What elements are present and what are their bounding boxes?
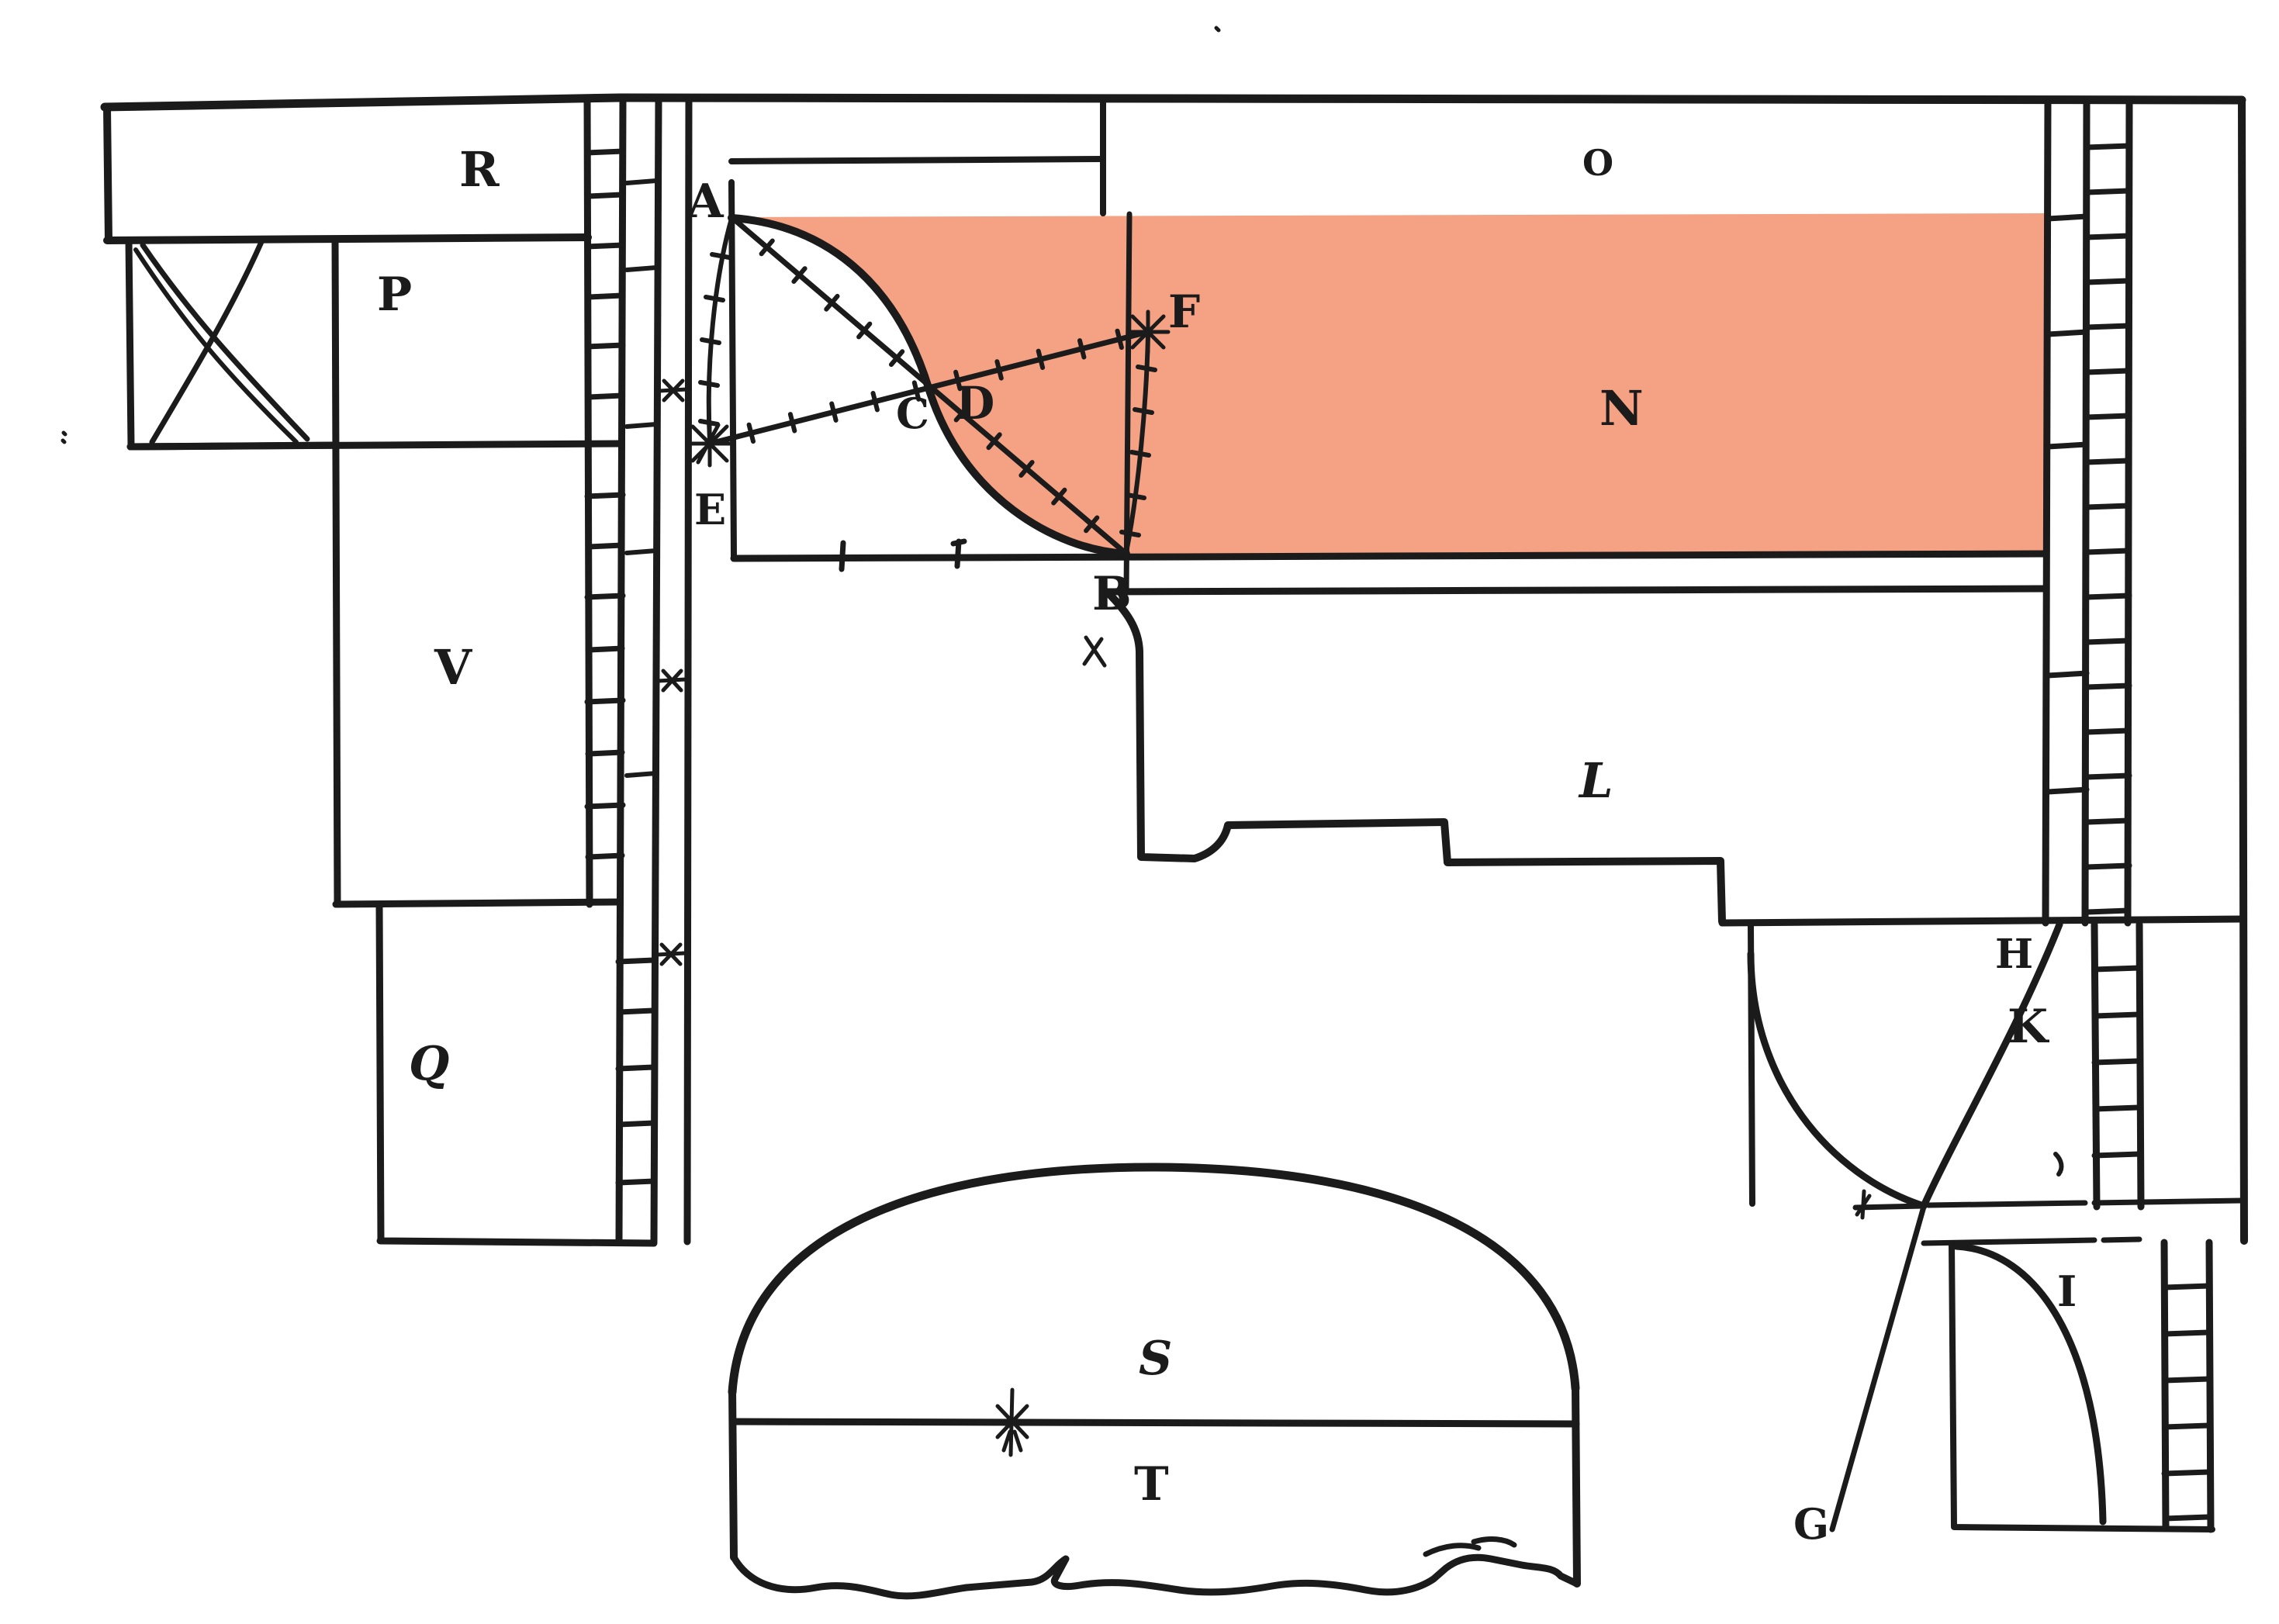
l-region-top-line <box>1105 589 2046 592</box>
square-and-n-bottom-line <box>734 554 2046 558</box>
k-quarter-arc <box>1751 954 1924 1206</box>
dome-left-wall <box>732 1388 734 1557</box>
box-p-bottom-line <box>130 444 621 447</box>
dome-torn-ground-line <box>734 1557 1577 1596</box>
i-top-line <box>1924 1239 2139 1243</box>
left-scale-ticks <box>627 181 656 776</box>
left-scale-rail-1 <box>587 99 590 904</box>
label-t: T <box>1134 1457 1169 1512</box>
label-f: F <box>1168 285 1200 338</box>
ornament-cross-curve-1b <box>136 250 296 442</box>
right-strip-divisions <box>2048 216 2087 792</box>
label-g: G <box>1793 1499 1829 1549</box>
label-n: N <box>1599 380 1644 437</box>
ornament-cross-curve-1 <box>143 245 307 439</box>
paper-speck-top <box>1216 28 1219 30</box>
dome-right-wall <box>1575 1387 1577 1584</box>
right-mid-ladder-rungs <box>2094 968 2139 1156</box>
plus-tick-k-line <box>1857 1191 1869 1218</box>
star-mark-f <box>1128 312 1168 352</box>
dome-springing-line <box>732 1422 1576 1424</box>
arc-a-to-e-ticks <box>700 254 729 424</box>
paper-speck-left <box>63 433 65 442</box>
left-scale-ladder-rungs <box>587 151 623 857</box>
cross-mark-under-b <box>1084 638 1105 665</box>
label-k: K <box>2008 1000 2049 1054</box>
right-strip-rail-1 <box>2046 103 2048 923</box>
ornament-cross-curve-2 <box>152 242 261 442</box>
arc-a-to-e <box>709 219 731 441</box>
cross-mark-ruler-3 <box>657 945 685 964</box>
engraving-page: R P V Q A E C D F B O N L H K I G S T <box>0 0 2279 1624</box>
right-ladder-rungs <box>2087 146 2129 912</box>
label-l: L <box>1578 752 1613 809</box>
right-strip-rail-3 <box>2128 103 2129 923</box>
cross-mark-ruler-2 <box>658 671 686 690</box>
label-i: I <box>2057 1266 2077 1316</box>
left-scale-rail-3 <box>654 99 659 1242</box>
right-border-line <box>2242 100 2244 1241</box>
label-b: B <box>1092 567 1132 621</box>
left-scale-rail-4 <box>687 99 689 1242</box>
i-quarter-arc <box>1956 1246 2103 1522</box>
label-a: A <box>686 174 725 229</box>
burst-mark-arch-center <box>995 1390 1029 1455</box>
top-border-line <box>105 98 2242 107</box>
label-v: V <box>434 639 472 696</box>
label-d: D <box>956 377 994 430</box>
label-q: Q <box>409 1037 449 1091</box>
label-o: O <box>1582 142 1613 184</box>
label-h: H <box>1995 931 2033 978</box>
k-comma-mark <box>2056 1154 2061 1174</box>
label-s: S <box>1139 1332 1172 1386</box>
left-scale-lower-rungs <box>618 960 654 1183</box>
right-strip-rail-2 <box>2085 103 2087 923</box>
box-p-v-left-edge <box>335 240 337 904</box>
g-construction-line <box>1832 1207 1924 1529</box>
label-c: C <box>896 389 929 438</box>
dome-ground-flourish <box>1426 1539 1514 1554</box>
label-e: E <box>694 485 726 534</box>
label-r: R <box>459 141 500 198</box>
square-left-edge <box>731 182 734 557</box>
top-fascia-line <box>731 159 1103 161</box>
cross-mark-ruler-1 <box>659 381 687 400</box>
k-diagonal-line <box>1924 924 2059 1206</box>
box-r-outline <box>107 107 588 240</box>
right-low-ladder-rungs <box>2164 1286 2209 1519</box>
l-profile-outline <box>1108 593 1722 921</box>
l-shelf-line <box>1722 919 2242 923</box>
star-mark-e <box>688 422 731 465</box>
label-p: P <box>377 268 412 322</box>
engraving-canvas: R P V Q A E C D F B O N L H K I G S T <box>0 0 2279 1624</box>
